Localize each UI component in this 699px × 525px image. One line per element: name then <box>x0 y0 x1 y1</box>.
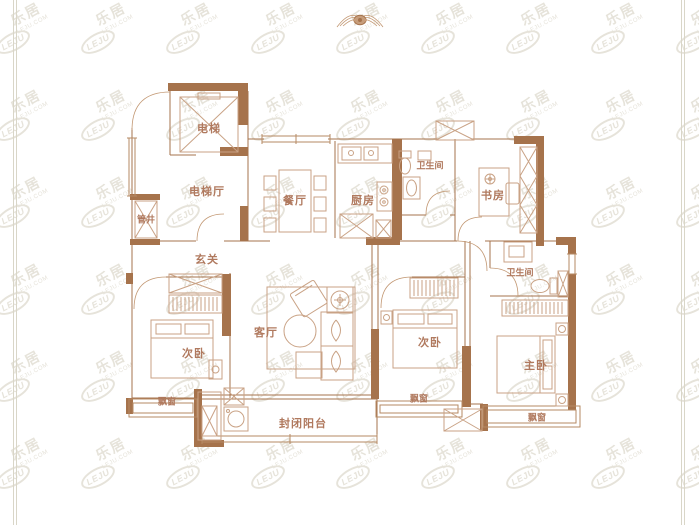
room-label-bay-window-right: 飘窗 <box>528 411 546 424</box>
room-label-kitchen: 厨房 <box>351 192 375 208</box>
floor-plan-drawing <box>0 0 699 525</box>
window-bump-top-icon <box>436 121 474 140</box>
room-label-bathroom-right: 卫生间 <box>506 266 533 279</box>
kitchen-fixtures-icon <box>338 144 392 238</box>
room-label-elevator-hall: 电梯厅 <box>189 183 225 199</box>
room-label-elevator: 电梯 <box>197 120 221 136</box>
room-label-bedroom-left: 次卧 <box>182 345 206 361</box>
floor-plan-page: LEJU乐居LEJU.COMLEJU乐居LEJU.COMLEJU乐居LEJU.C… <box>0 0 699 525</box>
master-bedroom-furniture-icon <box>497 300 568 406</box>
room-label-bathroom-top: 卫生间 <box>416 159 443 172</box>
room-label-balcony: 封闭阳台 <box>279 415 327 431</box>
door-arcs <box>132 92 518 309</box>
room-label-dining: 餐厅 <box>283 192 307 208</box>
room-label-entry: 玄关 <box>195 251 219 267</box>
room-label-bedroom-middle: 次卧 <box>418 334 442 350</box>
room-label-pipe-shaft: 管井 <box>137 213 155 226</box>
room-label-bay-window-left: 飘窗 <box>158 395 176 408</box>
bedroom-middle-furniture-icon <box>381 278 458 368</box>
north-compass-icon <box>337 15 383 27</box>
room-label-study: 书房 <box>481 187 505 203</box>
room-label-living: 客厅 <box>254 324 278 340</box>
room-label-bay-window-middle: 飘窗 <box>410 392 428 405</box>
window-bump-bottom-icon <box>444 409 482 431</box>
living-room-furniture-icon <box>267 280 355 380</box>
room-label-master-bedroom: 主卧 <box>524 357 548 373</box>
bedroom-left-furniture-icon <box>151 274 222 379</box>
balcony-appliances-icon <box>198 388 248 440</box>
